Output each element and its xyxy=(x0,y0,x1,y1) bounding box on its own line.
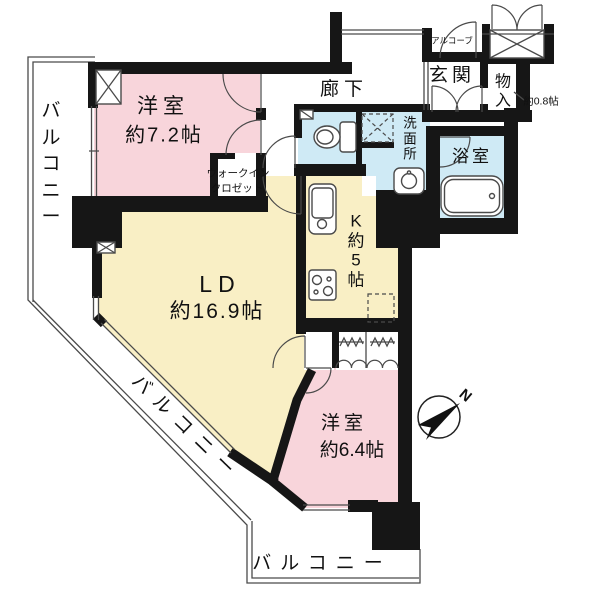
bedroom2-size: 約6.4帖 xyxy=(320,441,384,461)
washroom-label: 洗面所 xyxy=(402,116,418,163)
vanity-sink xyxy=(394,168,424,194)
alcove-label: アルコーブ xyxy=(431,37,473,46)
balcony-bottom-label: バルコニー xyxy=(252,554,392,574)
bedroom1-size: 約7.2帖 xyxy=(125,126,203,147)
compass-needle xyxy=(418,403,460,440)
trunk-closet xyxy=(482,30,554,58)
balcony-left-label: バルコニー xyxy=(40,99,62,232)
vent-box xyxy=(97,242,115,253)
bathroom-label: 浴室 xyxy=(452,148,492,166)
kitchen-label: K約5帖 xyxy=(346,212,366,291)
living-size: 約16.9帖 xyxy=(170,301,265,323)
bedroom1-name: 洋室 xyxy=(137,96,189,118)
toilet-door xyxy=(263,136,295,168)
hall-floor xyxy=(304,330,334,370)
compass xyxy=(418,396,460,440)
living-name: LD xyxy=(199,272,240,296)
kitchen-stove xyxy=(309,270,336,300)
bathtub xyxy=(441,176,503,216)
wic-label-line1: ウォークイン xyxy=(207,168,270,179)
bedroom1-corner-pillar xyxy=(96,70,121,104)
wic-label-line2: クロゼット xyxy=(211,183,264,194)
corridor-label: 廊下 xyxy=(320,80,368,100)
shoe-cabinet-doors xyxy=(432,86,482,112)
storage-label: 物入 xyxy=(494,73,513,110)
kitchen-sink xyxy=(309,184,336,234)
floorplan: バルコニー 洋室 約7.2帖 ウォークイン クロゼット 廊下 アルコーブ 玄関 … xyxy=(0,0,600,600)
closet-floor xyxy=(336,331,398,370)
storage-size: 約0.8帖 xyxy=(523,96,559,107)
trunk-closet-doors xyxy=(492,5,542,30)
bedroom2-name: 洋室 xyxy=(321,414,367,434)
entrance-label: 玄関 xyxy=(429,66,475,86)
